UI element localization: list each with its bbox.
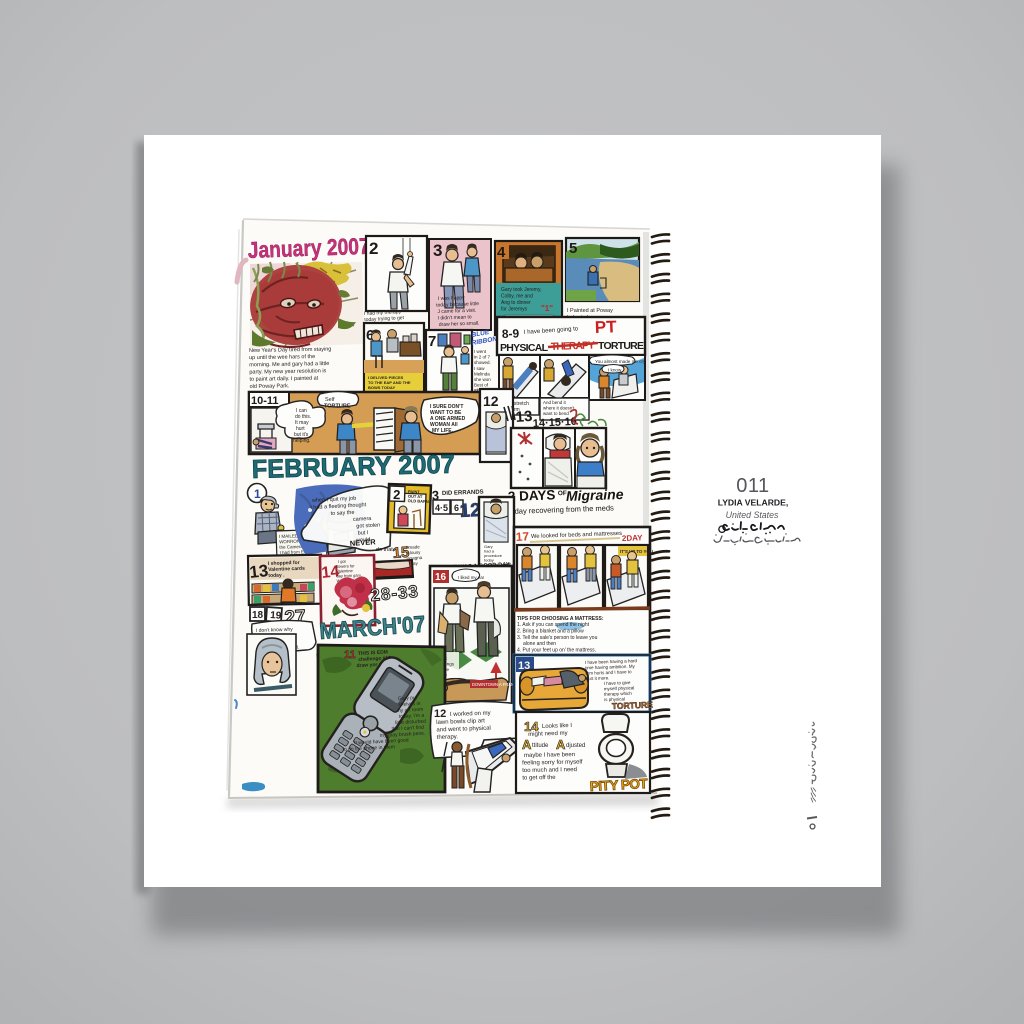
svg-text:TORTURE: TORTURE: [598, 340, 644, 352]
svg-text:3: 3: [433, 241, 442, 260]
svg-text:PITY POT: PITY POT: [589, 776, 648, 794]
svg-text:011: 011: [736, 475, 769, 497]
svg-text:1: 1: [254, 487, 261, 501]
svg-text:PHYSICAL: PHYSICAL: [500, 342, 549, 354]
svg-text:"1": "1": [541, 304, 553, 313]
svg-text:2: 2: [369, 239, 378, 258]
svg-text:2DAY: 2DAY: [622, 533, 644, 543]
svg-text:TORTURE: TORTURE: [324, 404, 351, 410]
svg-text:LYDIA VELARDE,: LYDIA VELARDE,: [718, 498, 789, 508]
svg-text:5: 5: [569, 240, 577, 257]
svg-text:8-9: 8-9: [502, 326, 520, 341]
svg-text:A: A: [522, 737, 532, 752]
svg-text:Self: Self: [325, 397, 335, 403]
svg-text:NEVER: NEVER: [350, 537, 377, 548]
svg-text:13: 13: [515, 408, 533, 426]
svg-text:13: 13: [248, 561, 269, 582]
svg-text:Migraine: Migraine: [566, 486, 624, 504]
svg-text:4: 4: [497, 244, 506, 261]
svg-text:January 2007: January 2007: [247, 233, 370, 263]
svg-text:ttitude: ttitude: [532, 743, 549, 749]
svg-text:TORTURE: TORTURE: [612, 700, 654, 711]
svg-text:DOWNTOWN A FRAME: DOWNTOWN A FRAME: [472, 682, 517, 687]
svg-text:djusted: djusted: [566, 743, 585, 749]
svg-text:FEBRUARY 2007: FEBRUARY 2007: [251, 449, 455, 484]
svg-text:11: 11: [344, 649, 356, 661]
svg-text:4·5: 4·5: [435, 503, 448, 513]
svg-text:10-11: 10-11: [251, 395, 279, 407]
svg-text:PT: PT: [594, 317, 617, 337]
svg-text:12: 12: [483, 393, 499, 409]
svg-text:You almost made me cry: You almost made me cry: [595, 359, 646, 364]
svg-text:6: 6: [454, 503, 459, 513]
svg-text:1. Ask if you can spend the ni: 1. Ask if you can spend the night2. Brin…: [517, 622, 598, 654]
svg-text:17: 17: [515, 529, 529, 544]
svg-text:I liked my ear: I liked my ear: [458, 575, 485, 580]
svg-text:do that: do that: [376, 547, 393, 553]
svg-text:12: 12: [434, 708, 446, 720]
svg-text:16: 16: [435, 572, 447, 583]
svg-text:A: A: [556, 737, 566, 752]
svg-text:United States: United States: [726, 510, 779, 520]
svg-text:IT'S UP TO YOU: IT'S UP TO YOU: [620, 549, 653, 554]
svg-text:7: 7: [428, 333, 436, 350]
svg-text:18: 18: [252, 610, 264, 621]
svg-text:I know: I know: [608, 368, 622, 373]
svg-text:2: 2: [393, 487, 401, 502]
